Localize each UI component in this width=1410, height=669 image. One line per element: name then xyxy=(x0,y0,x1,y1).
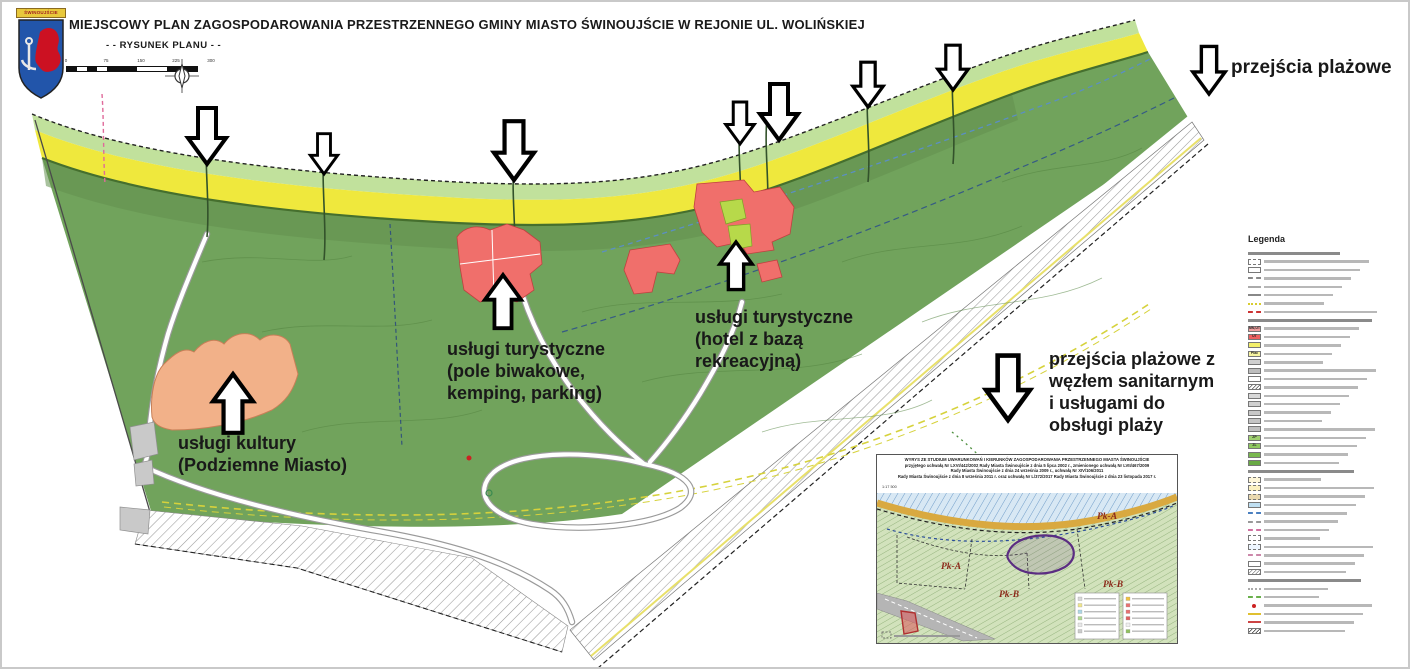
legend-label-bar xyxy=(1264,453,1348,456)
legend-row xyxy=(1248,274,1402,282)
inset-scale-label: 1:17 500 xyxy=(882,485,897,489)
legend-row xyxy=(1248,383,1402,391)
crest-banner: ŚWINOUJŚCIE xyxy=(16,8,66,18)
legend-row xyxy=(1248,492,1402,500)
legend-row xyxy=(1248,459,1402,467)
legend-row xyxy=(1248,543,1402,551)
annotation-arrow-down xyxy=(726,102,755,144)
legend-row xyxy=(1248,257,1402,265)
legend-swatch xyxy=(1248,613,1261,615)
label-tourism-camping: usługi turystyczne (pole biwakowe, kempi… xyxy=(447,338,605,404)
legend-row xyxy=(1248,509,1402,517)
legend-label-bar xyxy=(1264,495,1365,498)
legend-swatch xyxy=(1248,569,1261,575)
legend-swatch xyxy=(1248,494,1261,500)
legend-row xyxy=(1248,601,1402,609)
label-beach-crossings: przejścia plażowe xyxy=(1231,57,1392,79)
legend-label-bar xyxy=(1264,520,1338,523)
legend-row xyxy=(1248,610,1402,618)
legend-row xyxy=(1248,526,1402,534)
legend-label-bar xyxy=(1264,344,1341,347)
legend-label-bar xyxy=(1264,361,1323,364)
svg-text:Pk-B: Pk-B xyxy=(999,590,1019,600)
legend-row xyxy=(1248,358,1402,366)
legend-swatch xyxy=(1248,410,1261,416)
legend-rows: MN,UTUTPlacZPZL xyxy=(1248,249,1402,635)
crest-shield-icon xyxy=(16,18,66,100)
legend-swatch xyxy=(1248,535,1261,541)
legend-swatch xyxy=(1248,368,1261,374)
legend-section-header xyxy=(1248,319,1372,322)
legend-label-bar xyxy=(1264,277,1351,280)
legend-label-bar xyxy=(1264,596,1319,599)
legend-swatch: ZL xyxy=(1248,443,1261,449)
legend-label-bar xyxy=(1264,571,1346,574)
legend-label-bar xyxy=(1264,420,1322,423)
scale-tick: 300 xyxy=(207,58,215,63)
inset-map-canvas: Pk-A Pk-A Pk-B Pk-B xyxy=(877,493,1177,643)
svg-text:Pk-A: Pk-A xyxy=(1097,512,1117,522)
legend-label-bar xyxy=(1264,554,1364,557)
legend-label-bar xyxy=(1264,327,1359,330)
legend-swatch xyxy=(1248,294,1261,296)
plan-title: MIEJSCOWY PLAN ZAGOSPODAROWANIA PRZESTRZ… xyxy=(69,17,865,32)
legend-row xyxy=(1248,551,1402,559)
legend-row xyxy=(1248,408,1402,416)
legend-label-bar xyxy=(1264,546,1373,549)
legend-swatch: ZP xyxy=(1248,435,1261,441)
legend-row xyxy=(1248,518,1402,526)
scale-tick: 0 xyxy=(65,58,68,63)
legend-swatch: UT xyxy=(1248,334,1261,340)
compass-rose-icon xyxy=(164,58,200,94)
legend-swatch xyxy=(1248,401,1261,407)
legend-row xyxy=(1248,308,1402,316)
legend-swatch xyxy=(1248,544,1261,550)
legend-swatch xyxy=(1248,512,1261,514)
inset-red-area xyxy=(901,611,918,634)
legend-row xyxy=(1248,291,1402,299)
legend-swatch xyxy=(1248,393,1261,399)
legend-label-bar xyxy=(1264,529,1329,532)
legend-label-bar xyxy=(1264,445,1357,448)
legend-section-header xyxy=(1248,252,1340,255)
legend-row xyxy=(1248,618,1402,626)
legend-swatch xyxy=(1248,286,1261,288)
legend-label-bar xyxy=(1264,621,1354,624)
legend-row xyxy=(1248,392,1402,400)
legend-swatch xyxy=(1248,554,1261,556)
legend-swatch xyxy=(1248,502,1261,508)
legend-row: Plac xyxy=(1248,350,1402,358)
inset-study-map: WYRYS ZE STUDIUM UWARUNKOWAŃ I KIERUNKÓW… xyxy=(876,454,1178,644)
legend-row xyxy=(1248,627,1402,635)
legend-row xyxy=(1248,375,1402,383)
legend-swatch xyxy=(1248,628,1261,634)
scale-tick: 75 xyxy=(103,58,108,63)
legend-row: MN,UT xyxy=(1248,325,1402,333)
legend-label-bar xyxy=(1264,537,1320,540)
legend-panel: Legenda MN,UTUTPlacZPZL xyxy=(1248,234,1402,635)
legend-label-bar xyxy=(1264,378,1367,381)
legend-swatch xyxy=(1248,621,1261,623)
legend-row: ZL xyxy=(1248,442,1402,450)
inset-title-block: WYRYS ZE STUDIUM UWARUNKOWAŃ I KIERUNKÓW… xyxy=(877,457,1177,479)
legend-label-bar xyxy=(1264,269,1360,272)
city-crest: ŚWINOUJŚCIE xyxy=(16,8,66,100)
legend-row: UT xyxy=(1248,333,1402,341)
legend-swatch xyxy=(1248,452,1261,458)
legend-row xyxy=(1248,425,1402,433)
annotation-arrow-down xyxy=(986,356,1030,420)
legend-swatch xyxy=(1248,460,1261,466)
legend-row xyxy=(1248,501,1402,509)
legend-swatch xyxy=(1248,418,1261,424)
legend-swatch xyxy=(1248,376,1261,382)
legend-row xyxy=(1248,266,1402,274)
legend-label-bar xyxy=(1264,386,1358,389)
plan-subtitle: - - RYSUNEK PLANU - - xyxy=(106,40,221,51)
legend-swatch xyxy=(1248,311,1261,313)
legend-row xyxy=(1248,316,1402,324)
legend-swatch xyxy=(1248,267,1261,273)
legend-title: Legenda xyxy=(1248,234,1402,244)
legend-label-bar xyxy=(1264,478,1321,481)
legend-label-bar xyxy=(1264,630,1345,633)
legend-row xyxy=(1248,484,1402,492)
legend-label-bar xyxy=(1264,395,1349,398)
red-point-symbol xyxy=(467,456,472,461)
scale-tick: 150 xyxy=(137,58,145,63)
legend-section-header xyxy=(1248,579,1361,582)
legend-label-bar xyxy=(1264,562,1355,565)
legend-label-bar xyxy=(1264,428,1375,431)
legend-swatch: Plac xyxy=(1248,351,1261,357)
legend-row: ZP xyxy=(1248,434,1402,442)
legend-row xyxy=(1248,568,1402,576)
legend-label-bar xyxy=(1264,311,1377,314)
legend-swatch xyxy=(1248,596,1261,598)
legend-row xyxy=(1248,283,1402,291)
legend-row xyxy=(1248,249,1402,257)
legend-swatch xyxy=(1248,303,1261,305)
svg-text:Pk-A: Pk-A xyxy=(941,562,961,572)
legend-label-bar xyxy=(1264,336,1350,339)
annotation-arrow-down xyxy=(1193,46,1225,94)
legend-row xyxy=(1248,417,1402,425)
legend-row xyxy=(1248,585,1402,593)
legend-swatch xyxy=(1248,426,1261,432)
plan-sheet: ŚWINOUJŚCIE MIEJSCOWY PLAN ZAGOSPODAROWA… xyxy=(0,0,1410,669)
legend-row xyxy=(1248,534,1402,542)
legend-row xyxy=(1248,299,1402,307)
legend-label-bar xyxy=(1264,504,1356,507)
legend-swatch xyxy=(1248,485,1261,491)
legend-label-bar xyxy=(1264,588,1328,591)
legend-swatch xyxy=(1248,384,1261,390)
legend-label-bar xyxy=(1264,286,1342,289)
legend-swatch xyxy=(1248,259,1261,265)
legend-swatch xyxy=(1252,604,1256,608)
legend-row xyxy=(1248,593,1402,601)
legend-label-bar xyxy=(1264,437,1366,440)
legend-section-header xyxy=(1248,470,1354,473)
legend-row xyxy=(1248,467,1402,475)
legend-swatch xyxy=(1248,277,1261,279)
legend-swatch xyxy=(1248,359,1261,365)
legend-label-bar xyxy=(1264,604,1372,607)
legend-label-bar xyxy=(1264,512,1347,515)
label-beach-sanitary: przejścia plażowe z węzłem sanitarnym i … xyxy=(1049,348,1215,436)
label-culture: usługi kultury (Podziemne Miasto) xyxy=(178,432,347,476)
south-corridor-hatch xyxy=(135,510,568,652)
legend-label-bar xyxy=(1264,613,1363,616)
legend-label-bar xyxy=(1264,411,1331,414)
legend-label-bar xyxy=(1264,353,1332,356)
legend-swatch xyxy=(1248,529,1261,531)
legend-label-bar xyxy=(1264,369,1376,372)
legend-label-bar xyxy=(1264,294,1333,297)
legend-row xyxy=(1248,559,1402,567)
legend-label-bar xyxy=(1264,462,1339,465)
legend-row xyxy=(1248,400,1402,408)
inset-purple-area xyxy=(1007,535,1073,573)
legend-label-bar xyxy=(1264,487,1374,490)
legend-label-bar xyxy=(1264,260,1369,263)
legend-label-bar xyxy=(1264,403,1340,406)
legend-swatch: MN,UT xyxy=(1248,326,1261,332)
annotation-arrow-down xyxy=(853,62,883,107)
legend-label-bar xyxy=(1264,302,1324,305)
legend-swatch xyxy=(1248,588,1261,590)
legend-swatch xyxy=(1248,521,1261,523)
annotation-arrow-down xyxy=(494,121,534,180)
label-tourism-hotel: usługi turystyczne (hotel z bazą rekreac… xyxy=(695,306,853,372)
legend-row xyxy=(1248,450,1402,458)
legend-swatch xyxy=(1248,477,1261,483)
legend-row xyxy=(1248,476,1402,484)
legend-row xyxy=(1248,341,1402,349)
legend-row xyxy=(1248,366,1402,374)
svg-text:Pk-B: Pk-B xyxy=(1103,580,1123,590)
legend-row xyxy=(1248,576,1402,584)
inset-key-label-bar xyxy=(894,635,960,637)
legend-swatch xyxy=(1248,342,1261,348)
annotation-arrow-down xyxy=(310,134,337,174)
legend-swatch xyxy=(1248,561,1261,567)
annotation-arrow-down xyxy=(188,108,226,164)
